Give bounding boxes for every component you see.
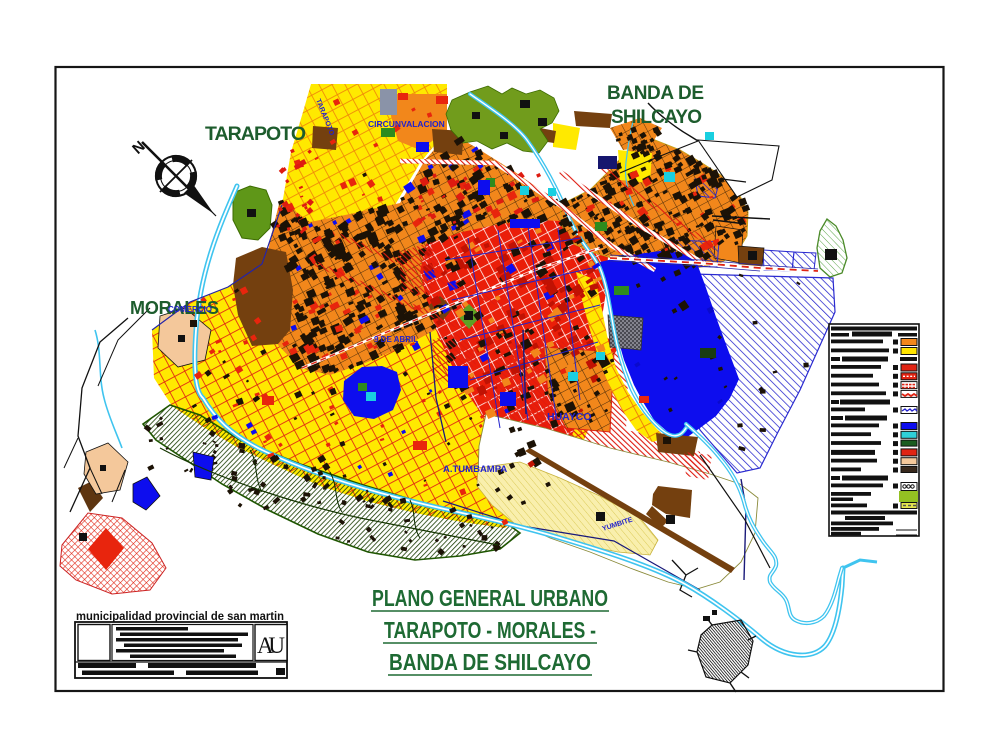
svg-text:TARAPOTO - MORALES -: TARAPOTO - MORALES - <box>384 617 596 643</box>
svg-text:A.TUMBAMPA: A.TUMBAMPA <box>443 464 507 475</box>
svg-text:TARAPOTO: TARAPOTO <box>205 123 306 145</box>
svg-text:COMERCIO: COMERCIO <box>168 305 212 314</box>
svg-text:BANDA DE SHILCAYO: BANDA DE SHILCAYO <box>389 649 591 675</box>
svg-text:municipalidad provincial de sa: municipalidad provincial de san martin <box>76 609 284 623</box>
svg-text:AU: AU <box>257 633 285 658</box>
svg-text:CIRCUNVALACION: CIRCUNVALACION <box>368 119 445 129</box>
svg-text:BANDA DE: BANDA DE <box>607 83 704 104</box>
svg-text:SHILCAYO: SHILCAYO <box>611 107 702 128</box>
svg-text:PLANO GENERAL URBANO: PLANO GENERAL URBANO <box>372 585 608 611</box>
svg-text:HUAYCO: HUAYCO <box>547 411 592 423</box>
svg-text:9 DE ABRIL: 9 DE ABRIL <box>374 335 418 344</box>
